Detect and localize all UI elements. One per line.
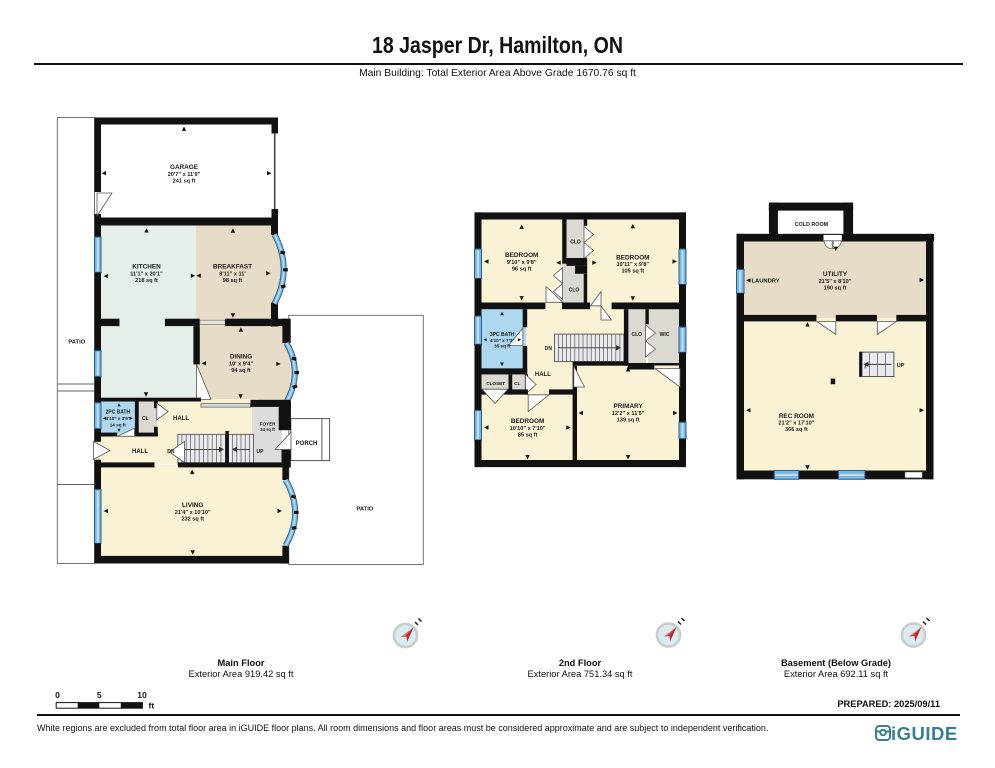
svg-text:139 sq ft: 139 sq ft [617, 417, 640, 423]
svg-text:BEDROOM: BEDROOM [511, 418, 544, 425]
svg-text:218 sq ft: 218 sq ft [135, 278, 158, 284]
svg-text:98 sq ft: 98 sq ft [223, 278, 243, 284]
svg-text:12'2" x 11'5": 12'2" x 11'5" [612, 411, 645, 417]
svg-text:366 sq ft: 366 sq ft [785, 427, 808, 433]
svg-text:PATIO: PATIO [356, 507, 373, 513]
svg-text:10'10" x 7'10": 10'10" x 7'10" [510, 426, 546, 432]
svg-text:9'10" x 9'8": 9'10" x 9'8" [507, 260, 537, 266]
svg-text:241 sq ft: 241 sq ft [173, 179, 196, 185]
svg-text:DN: DN [545, 346, 553, 352]
svg-text:5: 5 [97, 690, 102, 700]
svg-text:LAUNDRY: LAUNDRY [752, 279, 780, 285]
svg-text:BREAKFAST: BREAKFAST [213, 264, 252, 271]
svg-text:PRIMARY: PRIMARY [613, 403, 643, 410]
svg-text:HALL: HALL [173, 416, 189, 422]
svg-text:DN: DN [167, 449, 175, 455]
svg-text:4'10" x 7'3": 4'10" x 7'3" [490, 338, 514, 343]
svg-text:HALL: HALL [132, 449, 148, 455]
svg-text:35 sq ft: 35 sq ft [494, 343, 511, 348]
svg-text:4'10" x 3'9": 4'10" x 3'9" [106, 416, 130, 421]
svg-text:PORCH: PORCH [296, 441, 318, 447]
svg-text:CLOSET: CLOSET [486, 381, 505, 386]
svg-text:11'1" x 20'1": 11'1" x 20'1" [130, 272, 163, 278]
svg-text:190 sq ft: 190 sq ft [824, 285, 847, 291]
svg-text:10: 10 [137, 690, 147, 700]
svg-text:CL: CL [514, 381, 520, 386]
svg-text:HALL: HALL [535, 372, 551, 378]
svg-text:CL: CL [142, 416, 149, 422]
svg-text:REC ROOM: REC ROOM [779, 413, 814, 420]
svg-text:LIVING: LIVING [182, 502, 203, 509]
svg-text:10'11" x 9'8": 10'11" x 9'8" [617, 262, 650, 268]
svg-text:14 sq ft: 14 sq ft [110, 423, 127, 428]
svg-text:21'5" x 8'10": 21'5" x 8'10" [819, 279, 852, 285]
svg-text:COLD ROOM: COLD ROOM [795, 222, 829, 228]
svg-text:CLO: CLO [570, 240, 581, 246]
svg-text:ft: ft [149, 701, 155, 711]
svg-text:34 sq ft: 34 sq ft [260, 427, 275, 432]
svg-text:BEDROOM: BEDROOM [505, 252, 538, 259]
svg-text:232 sq ft: 232 sq ft [181, 517, 204, 523]
svg-text:WIC: WIC [660, 332, 670, 338]
svg-text:21'2" x 17'10": 21'2" x 17'10" [778, 421, 814, 427]
svg-text:96 sq ft: 96 sq ft [512, 266, 532, 272]
svg-text:UP: UP [897, 363, 905, 369]
svg-text:20'7" x 11'9": 20'7" x 11'9" [168, 172, 201, 178]
svg-text:94 sq ft: 94 sq ft [231, 368, 251, 374]
svg-text:21'4" x 10'10": 21'4" x 10'10" [175, 510, 211, 516]
svg-text:2PC BATH: 2PC BATH [105, 410, 130, 416]
svg-text:10' x 9'4": 10' x 9'4" [229, 362, 253, 368]
svg-text:8'11" x 11': 8'11" x 11' [219, 272, 246, 278]
svg-text:UTILITY: UTILITY [823, 271, 848, 278]
svg-text:BEDROOM: BEDROOM [616, 254, 649, 261]
svg-text:105 sq ft: 105 sq ft [621, 269, 644, 275]
svg-text:PATIO: PATIO [68, 340, 85, 346]
svg-text:0: 0 [55, 690, 60, 700]
svg-text:UP: UP [257, 449, 265, 455]
svg-text:DINING: DINING [230, 354, 252, 361]
svg-text:GARAGE: GARAGE [170, 164, 199, 171]
svg-text:KITCHEN: KITCHEN [132, 264, 161, 271]
svg-text:CLO: CLO [569, 288, 580, 294]
svg-text:85 sq ft: 85 sq ft [518, 432, 538, 438]
svg-text:CLO: CLO [632, 332, 643, 338]
